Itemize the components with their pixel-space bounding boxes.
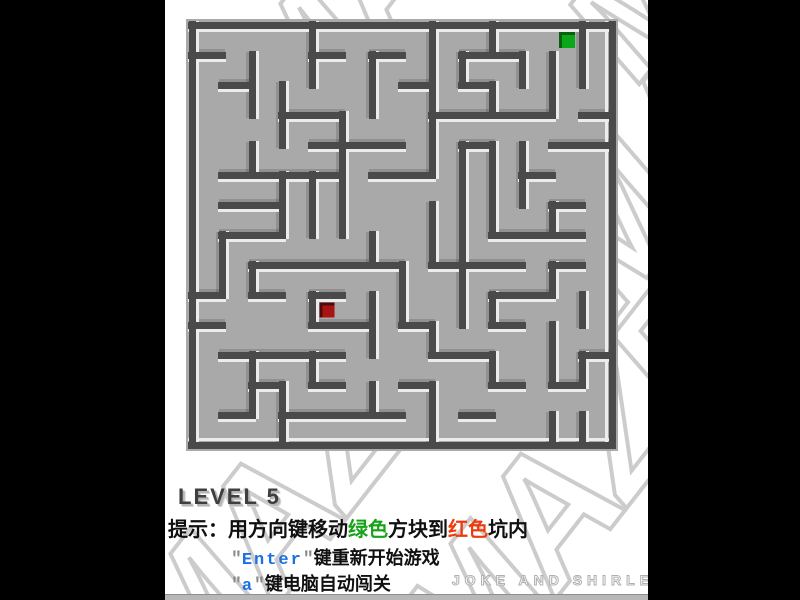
maze-wall	[549, 51, 556, 119]
red-square	[323, 306, 335, 318]
maze-wall	[369, 51, 376, 119]
maze-wall	[309, 291, 316, 329]
maze-wall	[249, 261, 256, 299]
maze-wall	[279, 81, 286, 149]
maze-wall	[429, 201, 436, 269]
maze-wall	[249, 51, 256, 119]
maze-wall	[489, 81, 496, 119]
maze-wall	[428, 262, 526, 269]
maze-wall	[489, 351, 496, 389]
bottom-edge-strip	[165, 594, 648, 600]
maze-wall	[368, 172, 436, 179]
maze-wall	[308, 322, 376, 329]
left-black-bar	[0, 0, 165, 600]
maze-wall	[549, 201, 556, 239]
maze-wall	[459, 141, 466, 329]
maze-wall	[488, 292, 556, 299]
maze-wall	[549, 321, 556, 389]
maze-wall	[489, 291, 496, 329]
maze-wall	[308, 142, 406, 149]
maze-wall	[579, 21, 586, 89]
maze-wall	[488, 232, 586, 239]
maze-wall	[249, 141, 256, 179]
maze-wall	[579, 291, 586, 329]
maze-wall	[218, 232, 286, 239]
maze-wall	[579, 411, 586, 449]
maze-wall	[309, 21, 316, 89]
maze-wall	[369, 231, 376, 269]
maze-wall	[458, 412, 496, 419]
maze-wall	[548, 142, 616, 149]
maze-wall	[249, 351, 256, 419]
maze-wall	[278, 412, 406, 419]
maze-wall	[429, 321, 436, 359]
maze-wall	[609, 21, 616, 449]
maze-wall	[339, 111, 346, 239]
maze-wall	[279, 381, 286, 449]
maze-wall	[429, 21, 436, 179]
maze-wall	[429, 381, 436, 449]
game-window: MAZE MAZE MAZE MAZE MAZE LEVEL 5 提示：用方向键…	[0, 0, 800, 600]
right-black-bar	[648, 0, 800, 600]
maze-wall	[218, 352, 346, 359]
maze-wall	[489, 21, 496, 59]
maze-wall	[309, 171, 316, 239]
maze-wall	[489, 141, 496, 239]
maze-wall	[549, 261, 556, 299]
green-square[interactable]	[562, 35, 575, 48]
maze-wall	[428, 352, 496, 359]
maze-wall	[549, 411, 556, 449]
maze-wall	[399, 261, 406, 329]
maze-wall	[278, 112, 346, 119]
maze-wall	[248, 262, 406, 269]
maze-wall	[218, 202, 286, 209]
maze-wall	[369, 381, 376, 419]
maze-wall	[519, 141, 526, 209]
maze-wall	[369, 291, 376, 359]
maze-wall	[519, 51, 526, 89]
maze-wall	[309, 351, 316, 389]
maze-wall	[459, 51, 466, 89]
maze-wall	[579, 351, 586, 389]
maze-wall	[188, 22, 616, 29]
maze-wall	[219, 231, 226, 299]
maze-wall	[189, 21, 196, 449]
maze-wall	[279, 171, 286, 239]
